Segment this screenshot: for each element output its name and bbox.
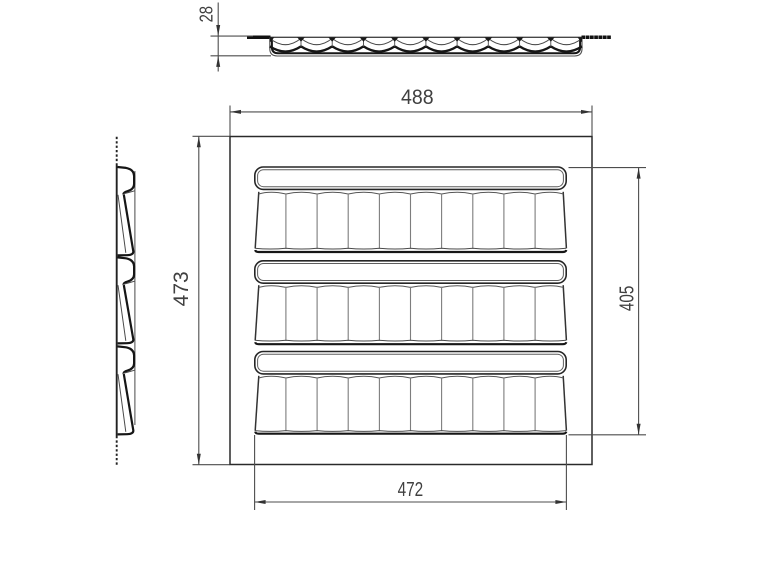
svg-text:472: 472: [398, 478, 424, 501]
svg-text:405: 405: [615, 286, 638, 311]
svg-text:28: 28: [196, 6, 217, 22]
svg-text:488: 488: [401, 86, 434, 109]
svg-text:473: 473: [170, 271, 193, 306]
